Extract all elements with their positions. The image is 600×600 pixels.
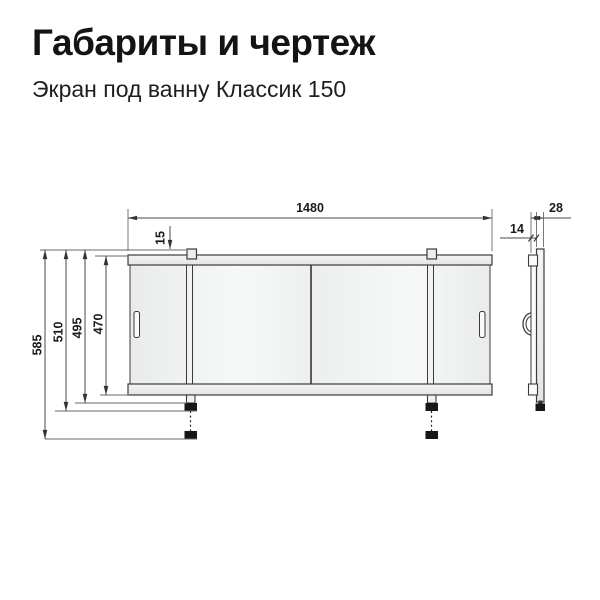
- bath-screen-side-view: [523, 249, 545, 411]
- dim-height-panel-label: 470: [92, 314, 106, 335]
- dim-height-leg-label: 495: [71, 318, 85, 339]
- dim-height-foot-label: 510: [52, 322, 66, 343]
- technical-drawing: 1480 15 585 510 495 470: [0, 0, 600, 600]
- side-foot: [536, 404, 546, 412]
- dim-depth-label: 28: [549, 201, 563, 215]
- leg-foot-extended-left: [185, 431, 198, 439]
- adjustable-leg-left: [187, 395, 196, 403]
- dim-panel-thickness-label: 14: [510, 222, 524, 236]
- guide-bracket-left: [187, 249, 197, 259]
- bottom-rail: [128, 384, 492, 395]
- page: Габариты и чертеж Экран под ванну Класси…: [0, 0, 600, 600]
- dimension-width: 1480: [128, 201, 492, 251]
- bath-screen-front-view: [128, 249, 492, 439]
- dim-guide-offset-label: 15: [154, 231, 168, 245]
- dim-height-total-label: 585: [31, 335, 45, 356]
- guide-bracket-right: [427, 249, 437, 259]
- dim-width-label: 1480: [296, 201, 324, 215]
- top-rail: [128, 255, 492, 265]
- door-stile-left: [187, 265, 193, 395]
- side-main-profile: [537, 249, 545, 402]
- leg-foot-left: [185, 403, 198, 411]
- door-handle-left: [134, 312, 140, 338]
- door-stile-right: [428, 265, 434, 395]
- leg-foot-right: [426, 403, 439, 411]
- dimension-guide-offset: 15: [154, 226, 171, 249]
- side-bracket-bottom: [529, 384, 538, 395]
- side-back-panel: [531, 265, 537, 390]
- side-bracket-top: [529, 255, 538, 266]
- adjustable-leg-right: [428, 395, 437, 403]
- dimension-panel-thickness: 14: [500, 222, 539, 242]
- side-foot-stem: [539, 401, 543, 405]
- leg-foot-extended-right: [426, 431, 439, 439]
- dimension-depth: 28: [531, 201, 571, 253]
- door-handle-right: [480, 312, 486, 338]
